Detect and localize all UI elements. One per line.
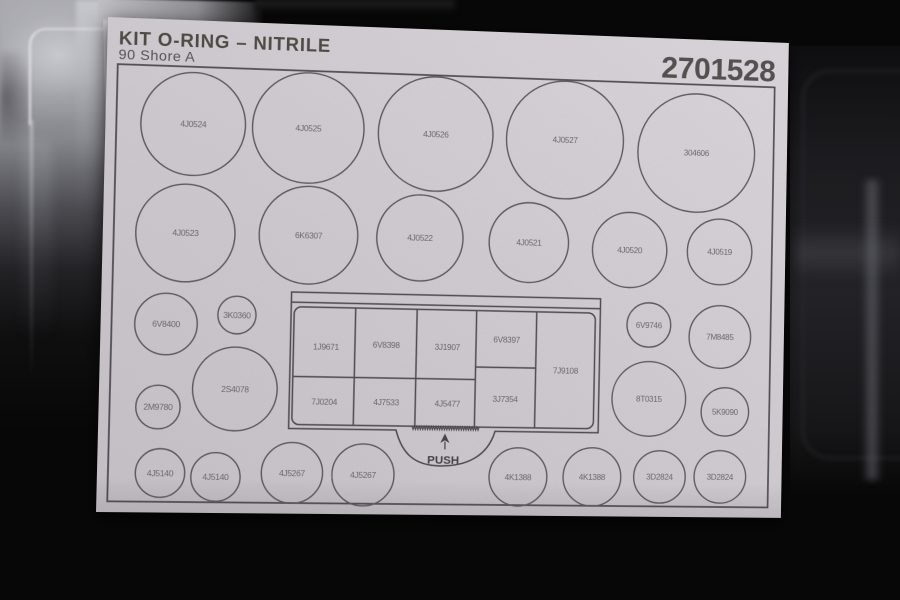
svg-text:4J0525: 4J0525 xyxy=(295,123,322,134)
svg-text:90 Shore A: 90 Shore A xyxy=(118,47,195,65)
svg-text:1J9671: 1J9671 xyxy=(313,342,340,352)
svg-text:4K1388: 4K1388 xyxy=(579,472,606,482)
svg-text:PUSH: PUSH xyxy=(427,453,459,467)
svg-text:2M9780: 2M9780 xyxy=(143,402,173,412)
svg-text:4J0523: 4J0523 xyxy=(172,228,199,239)
svg-text:4J5477: 4J5477 xyxy=(435,399,461,409)
svg-text:6V8398: 6V8398 xyxy=(373,340,401,350)
svg-text:2S4078: 2S4078 xyxy=(221,384,249,394)
svg-text:6K6307: 6K6307 xyxy=(295,230,323,240)
svg-text:3J1907: 3J1907 xyxy=(434,342,460,352)
svg-text:4J0519: 4J0519 xyxy=(707,247,732,257)
svg-text:4J7533: 4J7533 xyxy=(373,397,399,407)
svg-text:4J0520: 4J0520 xyxy=(617,245,643,255)
svg-text:4J5267: 4J5267 xyxy=(350,470,376,480)
svg-text:4J0526: 4J0526 xyxy=(423,129,449,139)
svg-text:4J5140: 4J5140 xyxy=(147,468,174,478)
svg-text:4J0524: 4J0524 xyxy=(180,119,207,130)
svg-text:3K0360: 3K0360 xyxy=(223,310,251,320)
svg-text:3D2824: 3D2824 xyxy=(707,472,734,482)
svg-text:4J0521: 4J0521 xyxy=(516,238,542,248)
svg-text:2701528: 2701528 xyxy=(661,50,776,88)
svg-text:304606: 304606 xyxy=(684,148,710,158)
svg-text:6V8397: 6V8397 xyxy=(493,335,520,345)
svg-text:6V9746: 6V9746 xyxy=(636,320,663,330)
svg-text:3J7354: 3J7354 xyxy=(492,394,518,404)
svg-text:4J5140: 4J5140 xyxy=(202,472,229,482)
svg-text:7J9108: 7J9108 xyxy=(553,366,579,376)
svg-text:4K1388: 4K1388 xyxy=(505,472,532,482)
svg-text:8T0315: 8T0315 xyxy=(636,394,662,404)
svg-text:6V8400: 6V8400 xyxy=(152,319,181,329)
svg-text:5K9090: 5K9090 xyxy=(712,407,739,417)
svg-text:7J0204: 7J0204 xyxy=(311,397,338,407)
svg-text:7M8485: 7M8485 xyxy=(706,332,734,342)
svg-text:4J0522: 4J0522 xyxy=(407,233,433,243)
svg-text:3D2824: 3D2824 xyxy=(646,472,673,482)
svg-text:4J0527: 4J0527 xyxy=(553,135,579,145)
svg-text:4J5267: 4J5267 xyxy=(279,468,306,478)
